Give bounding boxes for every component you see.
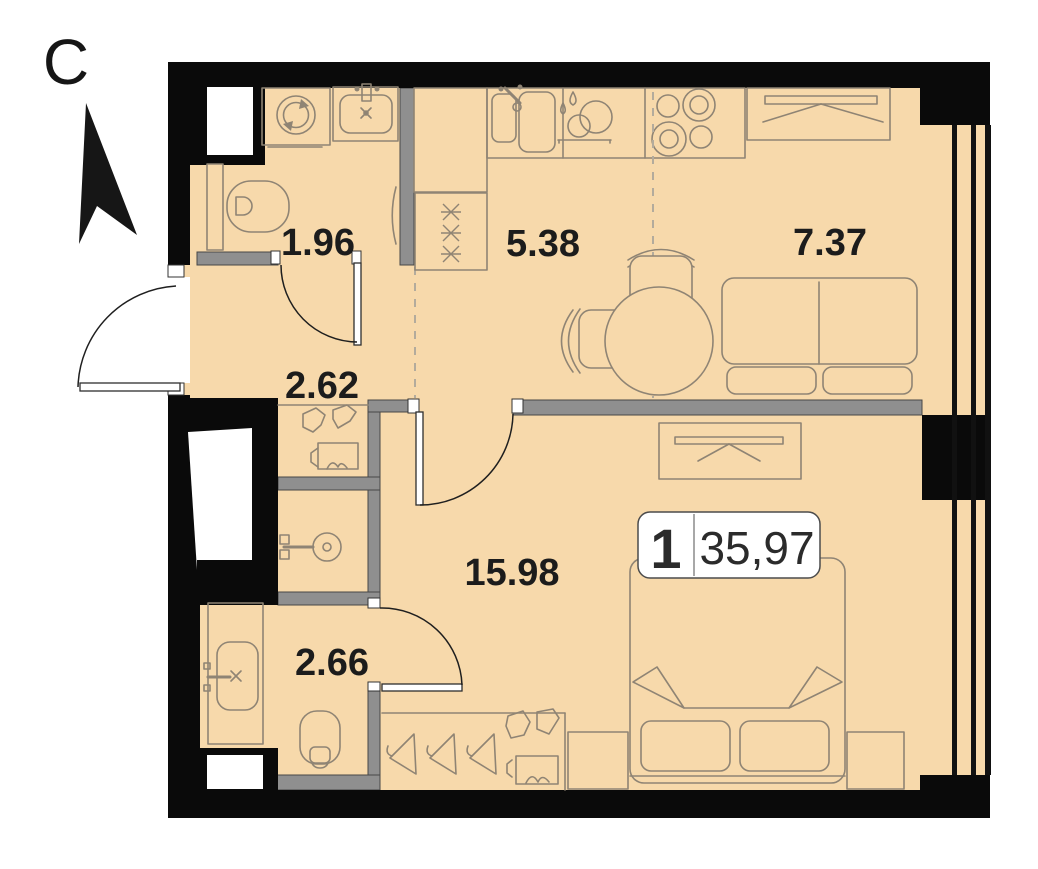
apartment-floor — [168, 62, 990, 818]
pillow — [641, 721, 730, 771]
badge-rooms-count: 1 — [650, 517, 681, 580]
fridge-icon — [415, 193, 487, 270]
window-glazing-line — [971, 125, 976, 775]
living-wardrobe-icon — [747, 88, 890, 140]
floor-plan-page: 1.96 5.38 7.37 2.62 15.98 2.66 1 35,97 С — [0, 0, 1038, 869]
pillow — [740, 721, 829, 771]
floor-plan: 1.96 5.38 7.37 2.62 15.98 2.66 1 35,97 С — [0, 0, 1038, 869]
bathroom-bottom-door-leaf — [382, 684, 462, 691]
room-area-label-bathroom-top: 1.96 — [281, 222, 355, 264]
bedroom-door-leaf — [416, 412, 423, 505]
room-area-label-hallway: 2.62 — [285, 365, 359, 407]
bed-icon — [630, 558, 845, 783]
window-outer-edge — [985, 125, 991, 775]
nightstand-icon — [568, 732, 628, 789]
duct-shaft — [207, 87, 253, 155]
room-area-label-living-room: 7.37 — [793, 222, 867, 264]
bedroom-wardrobe-icon — [659, 423, 801, 479]
badge-total-area: 35,97 — [699, 522, 814, 574]
north-indicator: С — [43, 26, 137, 244]
dining-table-icon — [605, 287, 713, 395]
unit-badge: 1 35,97 — [638, 512, 820, 580]
stair-shaft — [188, 428, 252, 578]
entry-door-swing — [78, 286, 176, 387]
north-arrow-icon — [79, 103, 137, 244]
bathroom-top-door-leaf — [354, 263, 361, 345]
room-area-label-kitchen: 5.38 — [506, 223, 580, 265]
window-glazing-line — [952, 125, 957, 775]
room-area-label-bathroom-bottom: 2.66 — [295, 642, 369, 684]
room-area-label-bedroom: 15.98 — [464, 552, 559, 594]
north-letter: С — [43, 26, 89, 98]
nightstand-icon — [847, 732, 904, 789]
wall-niche — [207, 755, 263, 789]
entry-door-leaf — [80, 383, 180, 391]
